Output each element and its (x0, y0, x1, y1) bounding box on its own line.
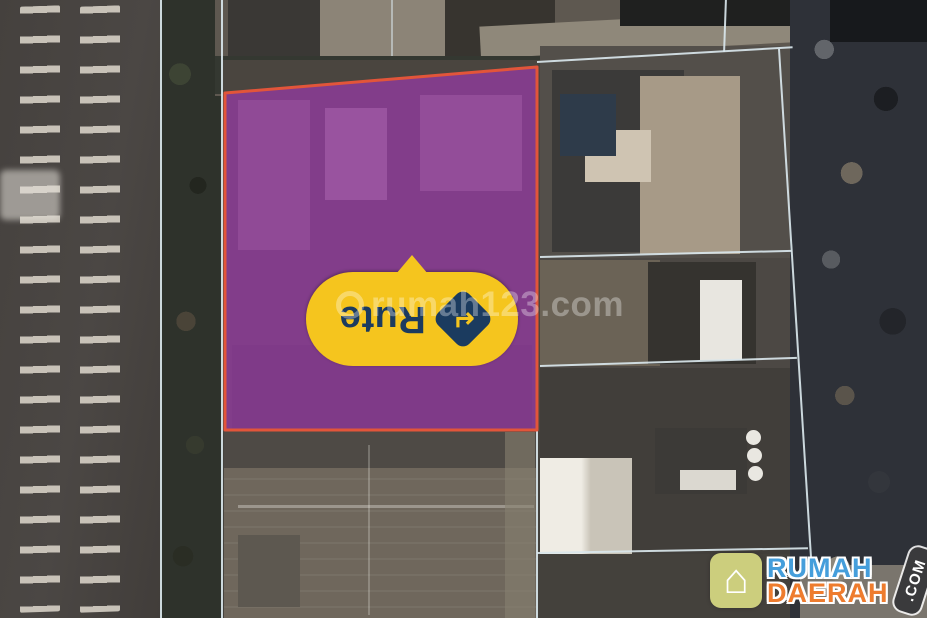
property-highlight-polygon[interactable] (225, 67, 537, 430)
route-marker[interactable]: ↵ Rute (306, 253, 518, 366)
route-marker-bubble[interactable]: ↵ Rute (306, 253, 518, 366)
house-glyph: ⌂ (723, 558, 748, 600)
directions-arrow-glyph: ↵ (451, 306, 474, 333)
brand-logo: ⌂ RUMAH DAERAH .COM (710, 543, 927, 618)
marker-pointer (396, 255, 428, 274)
route-button[interactable]: ↵ Rute (306, 272, 518, 366)
satellite-map: ↵ Rute rumah123.com ⌂ RUMAH DAERAH .COM (0, 0, 927, 618)
brand-tld-tag: .COM (892, 545, 927, 616)
brand-name-line1: RUMAH (767, 556, 889, 581)
directions-arrow-icon: ↵ (432, 288, 494, 350)
route-button-label: Rute (339, 298, 425, 341)
brand-tld-text: .COM (900, 557, 927, 603)
brand-wordmark: RUMAH DAERAH (767, 556, 889, 606)
house-icon: ⌂ (710, 553, 762, 608)
brand-name-line2: DAERAH (767, 581, 889, 606)
